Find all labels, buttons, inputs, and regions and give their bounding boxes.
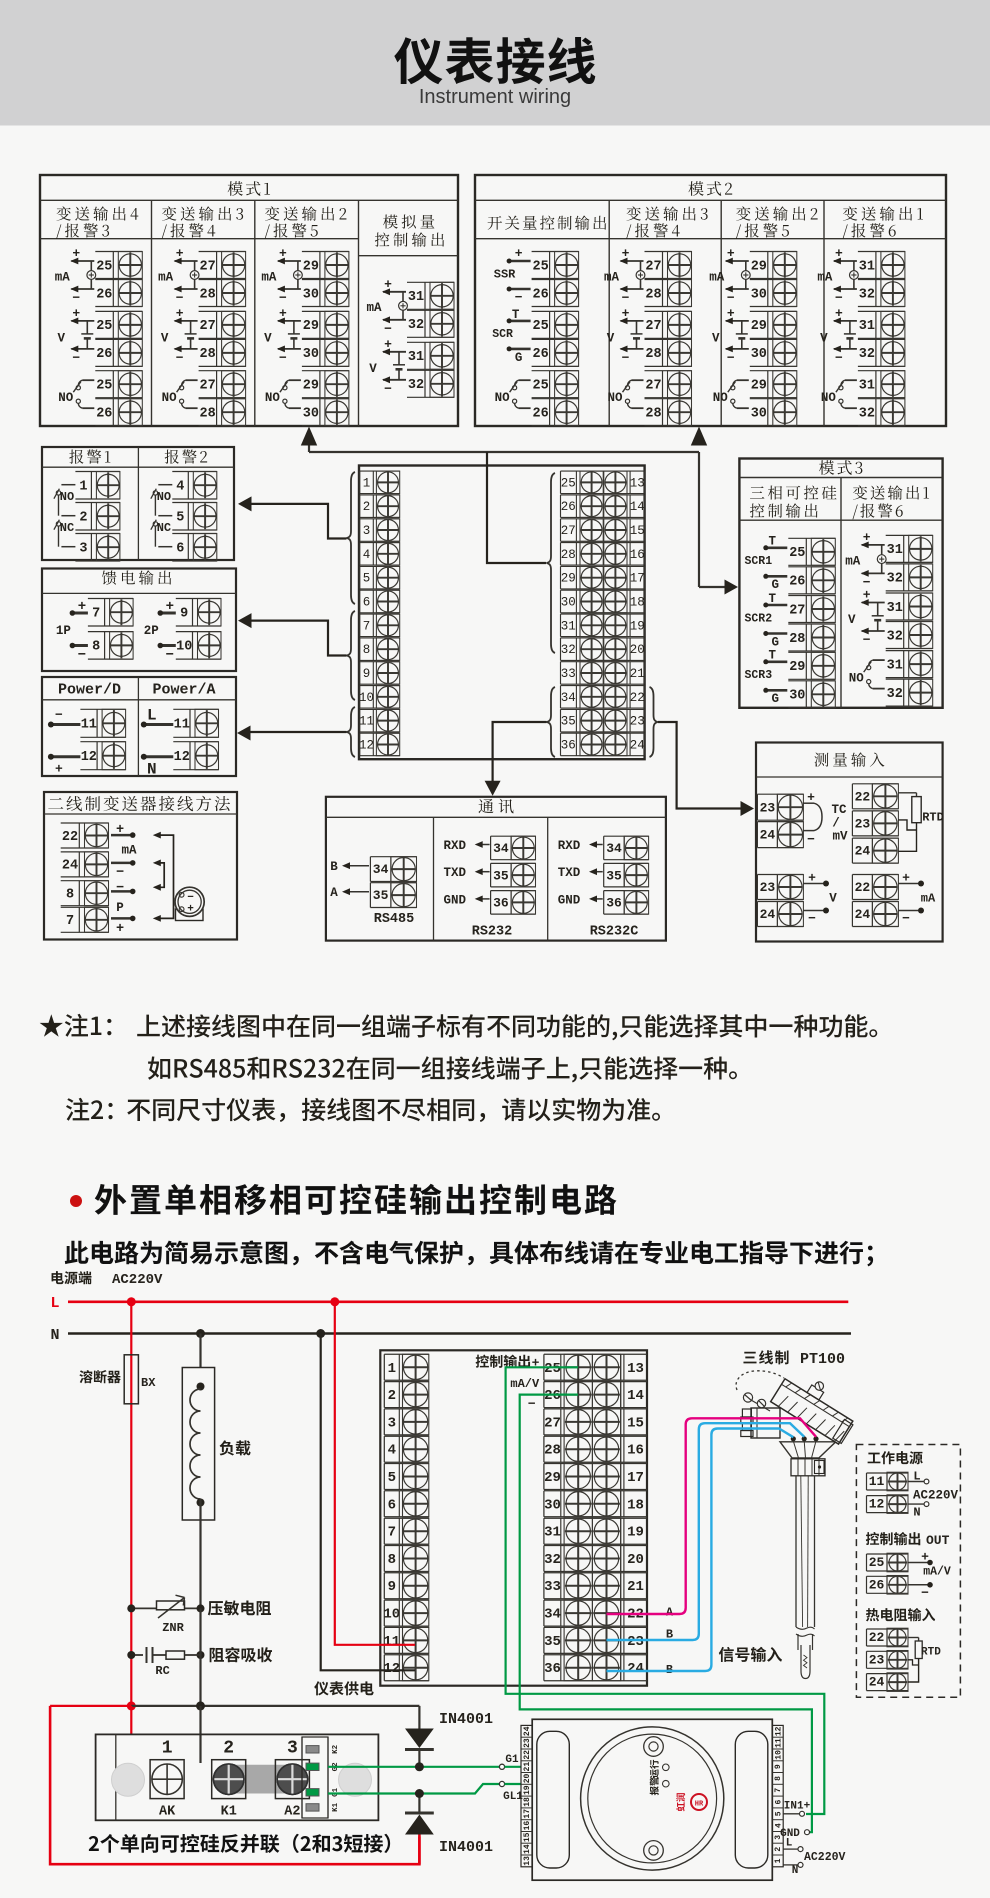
svg-text:2P: 2P: [144, 624, 159, 638]
svg-text:−: −: [78, 648, 86, 664]
svg-text:29: 29: [751, 259, 767, 274]
svg-text:−: −: [384, 321, 392, 336]
svg-text:RC: RC: [155, 1664, 169, 1678]
svg-text:6: 6: [363, 595, 371, 609]
svg-text:L: L: [147, 707, 157, 725]
svg-text:34: 34: [606, 841, 622, 856]
svg-text:NO: NO: [495, 391, 511, 405]
svg-text:22: 22: [869, 1630, 885, 1645]
svg-text:−: −: [808, 911, 816, 926]
svg-text:12: 12: [869, 1497, 885, 1512]
svg-text:17: 17: [630, 572, 645, 586]
svg-text:T: T: [512, 308, 520, 322]
svg-text:−: −: [116, 881, 124, 896]
svg-text:1: 1: [363, 476, 371, 490]
svg-text:17: 17: [627, 1470, 644, 1486]
svg-text:3: 3: [287, 1738, 298, 1758]
svg-text:25: 25: [96, 319, 112, 334]
svg-text:−: −: [515, 290, 523, 305]
svg-text:mA: mA: [121, 843, 137, 857]
svg-text:19: 19: [627, 1525, 644, 1541]
svg-text:−: −: [863, 633, 871, 648]
svg-text:10: 10: [774, 1750, 783, 1760]
svg-text:31: 31: [859, 259, 875, 274]
svg-text:5: 5: [176, 511, 184, 526]
svg-text:4: 4: [176, 480, 184, 495]
svg-text:24: 24: [760, 907, 776, 922]
svg-text:G: G: [772, 578, 780, 592]
svg-text:12: 12: [81, 750, 97, 765]
svg-text:32: 32: [408, 378, 424, 393]
svg-text:/: /: [832, 816, 840, 830]
svg-text:V: V: [161, 331, 169, 345]
svg-text:27: 27: [645, 379, 661, 394]
svg-text:4: 4: [363, 548, 371, 562]
svg-text:13: 13: [523, 1856, 532, 1866]
svg-text:1: 1: [162, 1738, 173, 1758]
svg-text:−: −: [187, 892, 194, 904]
svg-text:24: 24: [630, 738, 645, 752]
svg-text:29: 29: [561, 572, 576, 586]
svg-text:IN4001: IN4001: [439, 1839, 493, 1856]
svg-text:3: 3: [363, 524, 371, 538]
svg-text:K1: K1: [332, 1802, 340, 1812]
svg-text:25: 25: [544, 1361, 561, 1377]
svg-text:20: 20: [630, 643, 645, 657]
svg-text:32: 32: [408, 318, 424, 333]
svg-text:B: B: [330, 860, 338, 874]
svg-text:30: 30: [751, 407, 767, 422]
svg-text:2: 2: [363, 500, 371, 514]
svg-text:RS485: RS485: [374, 912, 415, 927]
svg-text:6: 6: [774, 1799, 783, 1804]
svg-text:33: 33: [561, 667, 576, 681]
svg-text:NO: NO: [821, 391, 837, 405]
svg-text:A2: A2: [284, 1804, 300, 1819]
svg-text:27: 27: [645, 259, 661, 274]
svg-text:K1: K1: [221, 1804, 237, 1819]
svg-text:−: −: [72, 291, 80, 306]
svg-text:−: −: [622, 291, 630, 306]
svg-text:12: 12: [359, 738, 374, 752]
svg-text:T: T: [769, 649, 777, 663]
svg-text:mA/V: mA/V: [923, 1566, 951, 1579]
svg-text:24: 24: [855, 907, 871, 922]
svg-text:22: 22: [62, 830, 78, 845]
svg-text:36: 36: [561, 738, 576, 752]
svg-text:11: 11: [81, 718, 97, 733]
svg-text:+: +: [863, 530, 871, 545]
svg-text:26: 26: [789, 575, 805, 590]
svg-text:NO: NO: [607, 391, 623, 405]
svg-text:V: V: [58, 331, 66, 345]
svg-text:22: 22: [855, 789, 871, 804]
svg-text:RTD: RTD: [922, 810, 944, 824]
svg-text:V: V: [820, 331, 828, 345]
svg-text:IN1+: IN1+: [784, 1801, 811, 1813]
svg-text:9: 9: [180, 607, 188, 622]
svg-text:1: 1: [79, 480, 87, 495]
svg-text:AC220V: AC220V: [804, 1851, 846, 1864]
svg-text:−: −: [528, 1396, 536, 1411]
svg-text:−: −: [902, 911, 910, 926]
svg-text:−: −: [921, 1586, 929, 1601]
svg-text:27: 27: [561, 524, 576, 538]
svg-text:+: +: [116, 823, 124, 838]
svg-text:3: 3: [79, 542, 87, 557]
svg-text:26: 26: [869, 1577, 885, 1592]
svg-text:18: 18: [523, 1797, 532, 1807]
svg-text:30: 30: [544, 1497, 561, 1513]
svg-text:G: G: [772, 635, 780, 649]
svg-text:Instrument wiring: Instrument wiring: [419, 86, 571, 108]
svg-text:30: 30: [751, 347, 767, 362]
svg-text:+: +: [807, 790, 815, 805]
svg-text:L: L: [913, 1469, 920, 1483]
svg-text:AK: AK: [159, 1804, 176, 1819]
svg-text:20: 20: [627, 1552, 644, 1568]
svg-text:8: 8: [363, 643, 371, 657]
svg-text:5: 5: [388, 1470, 396, 1486]
svg-text:Power/D: Power/D: [58, 681, 121, 698]
svg-text:+: +: [902, 871, 910, 886]
svg-text:28: 28: [789, 632, 805, 647]
svg-text:26: 26: [532, 347, 548, 362]
svg-text:+: +: [515, 246, 523, 261]
svg-text:V: V: [607, 331, 615, 345]
svg-text:−: −: [622, 351, 630, 366]
svg-text:23: 23: [855, 817, 871, 832]
svg-text:28: 28: [645, 407, 661, 422]
svg-text:25: 25: [532, 259, 548, 274]
svg-text:31: 31: [887, 658, 903, 673]
svg-text:Power/A: Power/A: [152, 681, 215, 698]
svg-text:12: 12: [774, 1726, 783, 1736]
svg-text:mA/V: mA/V: [510, 1377, 540, 1391]
svg-text:mA: mA: [817, 270, 833, 284]
svg-text:−: −: [807, 832, 815, 847]
svg-text:A: A: [666, 1606, 674, 1620]
svg-text:6: 6: [176, 542, 184, 557]
svg-text:2: 2: [223, 1738, 234, 1758]
svg-text:25: 25: [869, 1555, 885, 1570]
svg-text:7: 7: [363, 619, 371, 633]
svg-text:32: 32: [859, 347, 875, 362]
svg-text:14: 14: [627, 1388, 644, 1404]
svg-text:16: 16: [627, 1443, 644, 1459]
svg-text:−: −: [116, 865, 124, 880]
svg-text:35: 35: [373, 888, 389, 903]
svg-text:V: V: [369, 362, 377, 376]
svg-text:AC220V: AC220V: [913, 1489, 959, 1503]
svg-text:IN4001: IN4001: [439, 1711, 493, 1728]
svg-text:+: +: [622, 306, 630, 321]
svg-text:34: 34: [544, 1607, 561, 1623]
svg-text:+: +: [863, 588, 871, 603]
svg-text:2: 2: [79, 511, 87, 526]
svg-text:24: 24: [855, 844, 871, 859]
svg-text:32: 32: [887, 572, 903, 587]
svg-text:RS232C: RS232C: [590, 924, 639, 939]
svg-text:GND: GND: [443, 893, 466, 907]
svg-text:L: L: [50, 1295, 59, 1312]
svg-text:6: 6: [388, 1497, 396, 1513]
svg-text:11: 11: [174, 718, 190, 733]
svg-text:NO: NO: [58, 391, 74, 405]
svg-text:25: 25: [789, 546, 805, 561]
svg-text:27: 27: [199, 379, 215, 394]
svg-text:mA: mA: [845, 555, 861, 569]
svg-text:19: 19: [630, 619, 645, 633]
svg-text:mA: mA: [366, 301, 382, 315]
svg-text:A: A: [330, 886, 338, 900]
svg-text:21: 21: [523, 1762, 532, 1772]
svg-text:G1: G1: [505, 1754, 519, 1766]
svg-text:−: −: [835, 291, 843, 306]
svg-text:−: −: [279, 351, 287, 366]
svg-text:+: +: [116, 922, 124, 937]
svg-text:31: 31: [408, 350, 424, 365]
svg-text:G: G: [515, 351, 523, 365]
svg-text:mV: mV: [832, 829, 848, 843]
svg-text:+: +: [166, 599, 174, 615]
svg-text:SCR3: SCR3: [744, 669, 772, 682]
svg-text:+: +: [279, 246, 287, 261]
svg-text:+: +: [55, 761, 63, 776]
svg-text:16: 16: [523, 1821, 532, 1831]
svg-text:22: 22: [523, 1750, 532, 1760]
svg-text:+: +: [72, 306, 80, 321]
svg-text:26: 26: [532, 287, 548, 302]
svg-text:NO: NO: [60, 490, 74, 504]
svg-text:+: +: [384, 277, 392, 292]
svg-text:27: 27: [544, 1415, 561, 1431]
svg-text:PT100: PT100: [800, 1351, 845, 1368]
svg-text:35: 35: [544, 1634, 561, 1650]
svg-text:28: 28: [199, 407, 215, 422]
svg-text:28: 28: [544, 1443, 561, 1459]
svg-text:8: 8: [388, 1552, 396, 1568]
svg-text:11: 11: [359, 715, 374, 729]
svg-text:ZNR: ZNR: [162, 1621, 184, 1635]
svg-text:25: 25: [96, 379, 112, 394]
svg-text:21: 21: [630, 667, 645, 681]
svg-text:3: 3: [388, 1415, 396, 1431]
svg-text:+: +: [835, 246, 843, 261]
svg-text:29: 29: [789, 660, 805, 675]
svg-text:V: V: [712, 331, 720, 345]
svg-text:K2: K2: [332, 1744, 340, 1754]
svg-text:23: 23: [869, 1652, 885, 1667]
svg-text:29: 29: [303, 319, 319, 334]
svg-text:8: 8: [92, 640, 100, 655]
svg-text:32: 32: [561, 643, 576, 657]
svg-text:+: +: [279, 306, 287, 321]
svg-text:23: 23: [627, 1634, 644, 1650]
svg-text:28: 28: [645, 287, 661, 302]
svg-text:34: 34: [493, 841, 509, 856]
svg-text:OUT: OUT: [926, 1533, 950, 1548]
svg-text:N: N: [792, 1865, 799, 1877]
svg-text:22: 22: [855, 880, 871, 895]
svg-text:TC: TC: [831, 803, 847, 817]
svg-text:25: 25: [532, 379, 548, 394]
svg-text:28: 28: [645, 347, 661, 362]
svg-text:24: 24: [869, 1675, 885, 1690]
svg-text:26: 26: [96, 347, 112, 362]
svg-text:26: 26: [532, 407, 548, 422]
svg-text:31: 31: [859, 319, 875, 334]
svg-text:30: 30: [303, 347, 319, 362]
svg-text:25: 25: [96, 259, 112, 274]
svg-text:27: 27: [789, 603, 805, 618]
svg-text:−: −: [72, 351, 80, 366]
svg-text:RXD: RXD: [443, 839, 466, 853]
svg-text:32: 32: [887, 629, 903, 644]
svg-text:N: N: [50, 1327, 59, 1344]
svg-text:26: 26: [96, 407, 112, 422]
svg-text:1: 1: [388, 1361, 396, 1377]
svg-text:31: 31: [887, 601, 903, 616]
svg-text:−: −: [55, 708, 63, 723]
svg-text:19: 19: [523, 1785, 532, 1795]
svg-text:SCR: SCR: [492, 328, 513, 341]
svg-text:30: 30: [303, 407, 319, 422]
svg-text:AC220V: AC220V: [112, 1272, 163, 1288]
svg-text:29: 29: [303, 259, 319, 274]
svg-text:27: 27: [645, 319, 661, 334]
svg-text:SSR: SSR: [494, 267, 516, 281]
svg-text:+: +: [808, 871, 816, 886]
svg-text:TXD: TXD: [558, 866, 581, 880]
svg-text:26: 26: [544, 1388, 561, 1404]
svg-text:NO: NO: [162, 391, 178, 405]
svg-text:mA: mA: [921, 891, 936, 905]
svg-text:33: 33: [544, 1579, 561, 1595]
svg-text:10: 10: [176, 640, 192, 655]
svg-text:23: 23: [760, 800, 776, 815]
svg-text:4: 4: [388, 1443, 396, 1459]
svg-text:GND: GND: [558, 893, 581, 907]
svg-text:28: 28: [561, 548, 576, 562]
svg-text:14: 14: [630, 500, 645, 514]
svg-text:35: 35: [493, 868, 509, 883]
svg-text:+: +: [176, 306, 184, 321]
svg-text:NO: NO: [265, 391, 281, 405]
svg-text:L: L: [786, 1838, 793, 1850]
svg-text:12: 12: [383, 1661, 400, 1677]
svg-text:23: 23: [630, 715, 645, 729]
svg-text:+: +: [727, 246, 735, 261]
svg-text:+: +: [176, 246, 184, 261]
svg-text:8: 8: [774, 1776, 783, 1781]
svg-text:24: 24: [523, 1726, 532, 1736]
svg-text:+: +: [835, 306, 843, 321]
svg-text:25: 25: [532, 319, 548, 334]
svg-text:15: 15: [627, 1415, 644, 1431]
svg-text:NO: NO: [849, 671, 865, 685]
svg-text:−: −: [176, 351, 184, 366]
svg-text:mA: mA: [55, 270, 71, 284]
svg-text:−: −: [166, 648, 174, 664]
svg-text:2: 2: [388, 1388, 396, 1404]
svg-text:23: 23: [760, 880, 776, 895]
svg-text:23: 23: [523, 1738, 532, 1748]
svg-text:mA: mA: [709, 270, 725, 284]
svg-text:1P: 1P: [56, 624, 71, 638]
svg-text:13: 13: [630, 476, 645, 490]
svg-text:+: +: [727, 306, 735, 321]
svg-text:7: 7: [92, 607, 100, 622]
svg-text:11: 11: [383, 1634, 400, 1650]
svg-text:−: −: [384, 381, 392, 396]
svg-text:NC: NC: [60, 521, 74, 535]
svg-text:+: +: [921, 1550, 929, 1565]
svg-text:N: N: [913, 1505, 920, 1519]
svg-text:31: 31: [887, 543, 903, 558]
svg-text:20: 20: [523, 1773, 532, 1783]
svg-text:30: 30: [303, 287, 319, 302]
svg-text:32: 32: [544, 1552, 561, 1568]
svg-text:36: 36: [606, 896, 622, 911]
svg-text:mA: mA: [158, 270, 174, 284]
svg-text:10: 10: [359, 691, 374, 705]
svg-text:16: 16: [630, 548, 645, 562]
svg-text:+: +: [187, 903, 194, 915]
svg-text:35: 35: [561, 715, 576, 729]
svg-text:T: T: [769, 592, 777, 606]
svg-text:24: 24: [760, 828, 776, 843]
svg-text:T: T: [769, 535, 777, 549]
svg-text:34: 34: [561, 691, 576, 705]
svg-text:−: −: [727, 351, 735, 366]
svg-text:5: 5: [363, 572, 371, 586]
svg-text:−: −: [279, 291, 287, 306]
svg-text:29: 29: [751, 319, 767, 334]
svg-text:25: 25: [561, 476, 576, 490]
svg-text:28: 28: [199, 347, 215, 362]
svg-text:31: 31: [408, 290, 424, 305]
svg-text:27: 27: [199, 259, 215, 274]
svg-text:HR: HR: [695, 1801, 704, 1809]
svg-text:mA: mA: [604, 270, 620, 284]
svg-text:V: V: [829, 891, 837, 905]
svg-text:P: P: [116, 901, 124, 915]
svg-text:15: 15: [523, 1832, 532, 1842]
svg-text:NO: NO: [713, 391, 729, 405]
svg-text:13: 13: [627, 1361, 644, 1377]
svg-text:15: 15: [630, 524, 645, 538]
svg-text:32: 32: [859, 287, 875, 302]
svg-text:27: 27: [199, 319, 215, 334]
svg-text:7: 7: [388, 1525, 396, 1541]
svg-text:21: 21: [627, 1579, 644, 1595]
svg-text:29: 29: [751, 379, 767, 394]
svg-text:V: V: [848, 613, 856, 627]
svg-text:18: 18: [630, 595, 645, 609]
svg-text:30: 30: [751, 287, 767, 302]
svg-text:NO: NO: [157, 490, 171, 504]
svg-text:V: V: [264, 331, 272, 345]
svg-text:TXD: TXD: [443, 866, 466, 880]
svg-text:+: +: [72, 246, 80, 261]
svg-text:32: 32: [859, 407, 875, 422]
svg-text:24: 24: [62, 859, 78, 874]
svg-text:RXD: RXD: [558, 839, 581, 853]
svg-text:−: −: [835, 351, 843, 366]
svg-text:5: 5: [774, 1811, 783, 1816]
svg-text:18: 18: [627, 1497, 644, 1513]
